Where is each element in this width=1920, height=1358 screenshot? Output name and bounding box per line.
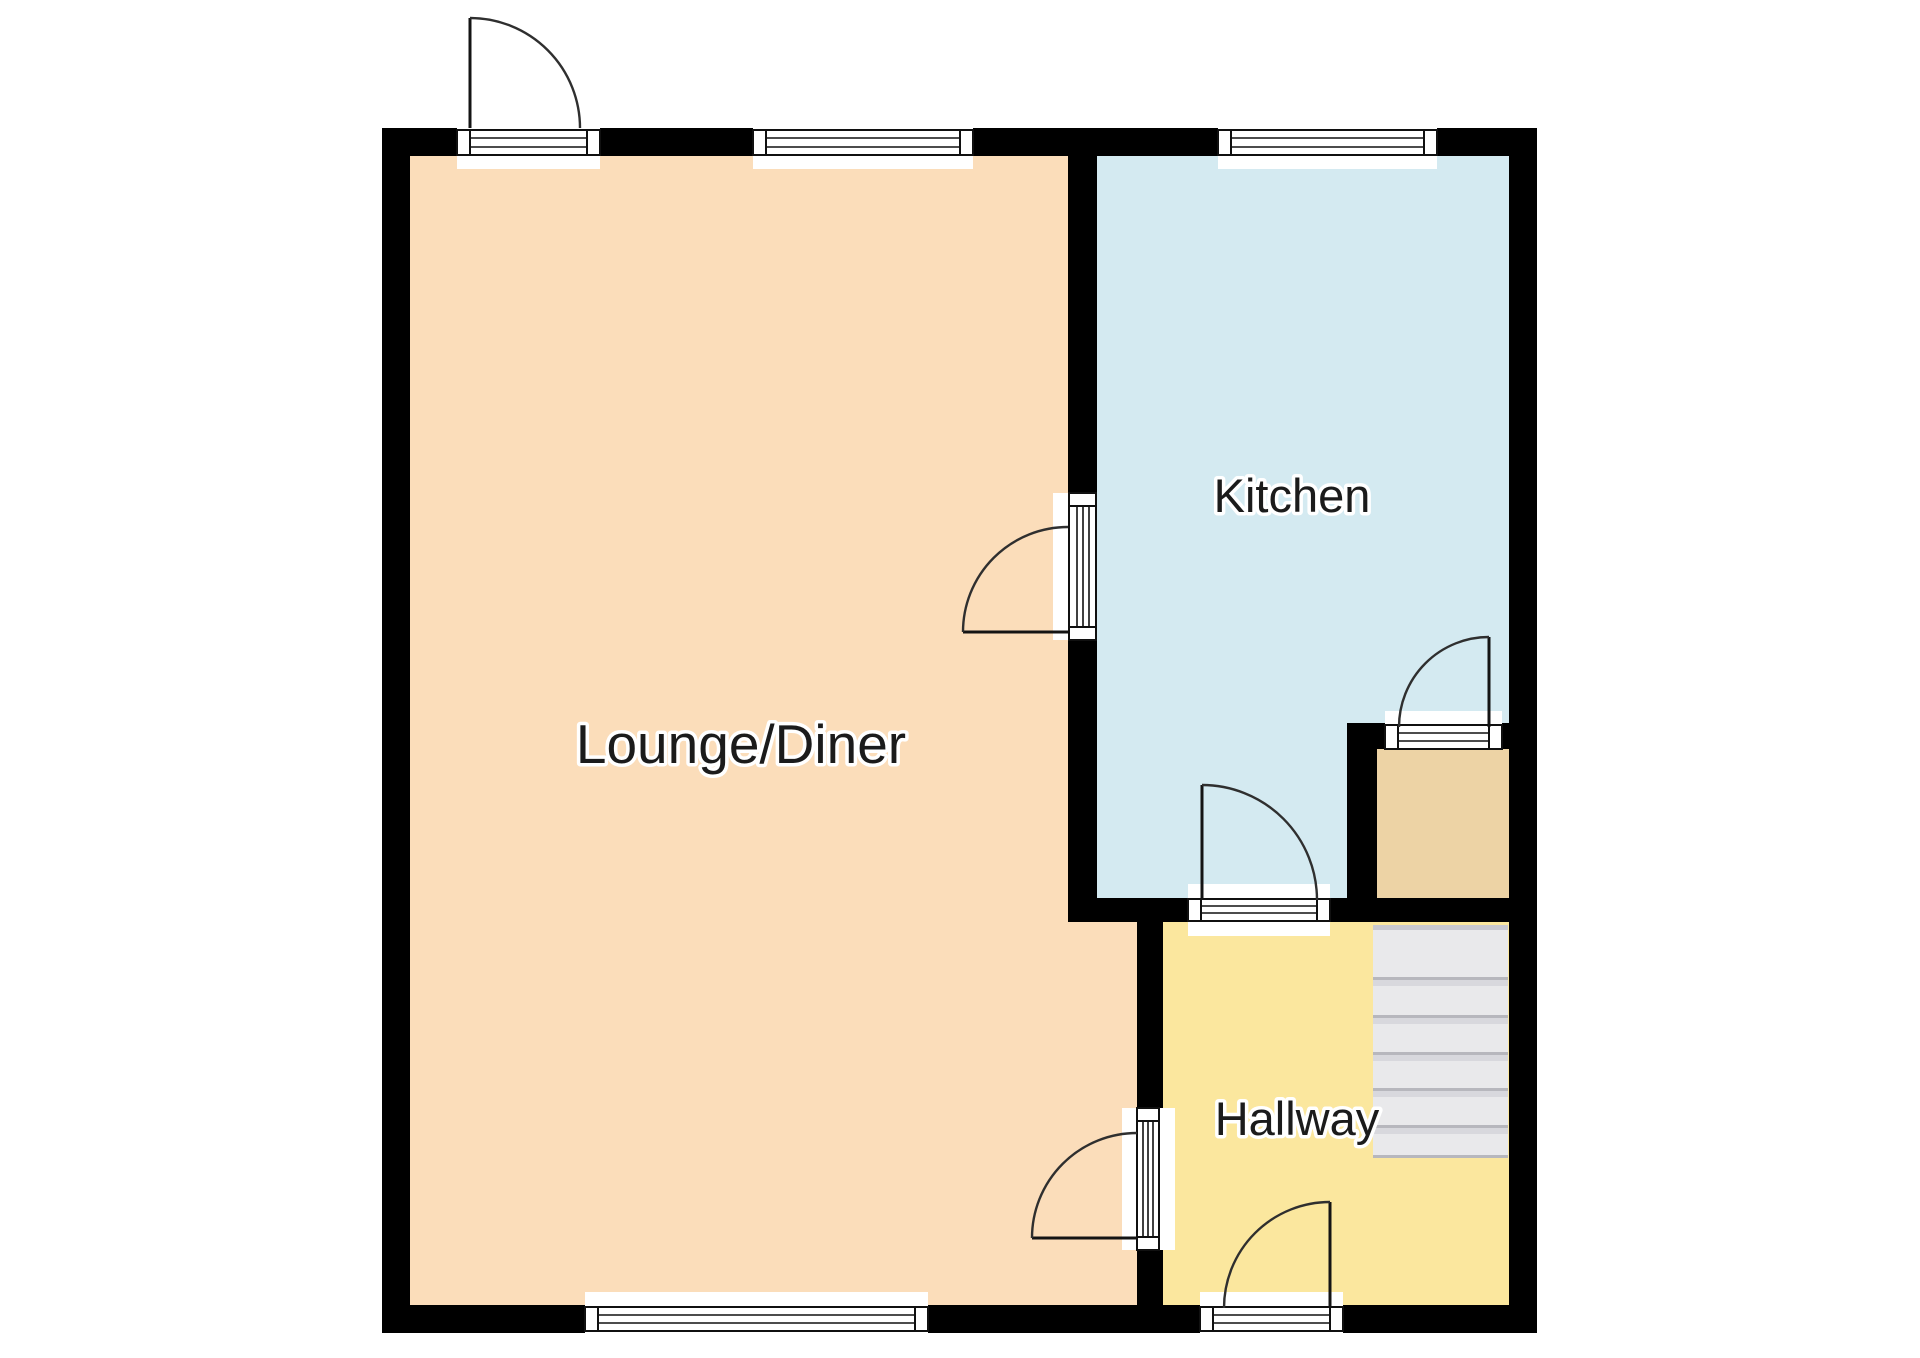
stair-tread-edge: [1373, 1052, 1508, 1055]
niche: [1385, 711, 1502, 725]
wall-left-exterior: [382, 128, 410, 1333]
wall-right-exterior: [1509, 128, 1537, 1333]
stair-tread-shadow: [1373, 1128, 1508, 1134]
window-cap: [585, 1307, 598, 1331]
lounge-label: Lounge/Diner: [576, 713, 906, 775]
door-threshold: [1200, 1307, 1343, 1331]
door-threshold: [1188, 899, 1330, 921]
threshold-cap: [1200, 1307, 1213, 1331]
niche: [1188, 884, 1330, 899]
niche: [1053, 493, 1069, 640]
niche: [1188, 922, 1330, 936]
niche: [585, 1292, 928, 1306]
stair-tread-shadow: [1373, 980, 1508, 986]
threshold-cap: [457, 130, 470, 155]
threshold-cap: [1489, 725, 1502, 749]
window-frame: [1218, 130, 1437, 155]
window-frame: [753, 130, 973, 155]
window-cap: [915, 1307, 928, 1331]
window-cap: [1218, 130, 1231, 155]
stair-tread-shadow: [1373, 1055, 1508, 1061]
stair-tread-edge: [1373, 977, 1508, 980]
window-cap: [753, 130, 766, 155]
lounge-bottom-window: [585, 1307, 928, 1331]
wall-segment-bottom: [382, 1305, 585, 1333]
niche: [1200, 1292, 1343, 1306]
threshold-cap: [587, 130, 600, 155]
store-floor: [1377, 749, 1509, 898]
stairs-top-shadow: [1373, 925, 1508, 930]
door-cap: [1137, 1108, 1159, 1121]
door-threshold: [1385, 725, 1502, 749]
wall-store-top: [1347, 723, 1385, 749]
threshold-cap: [1188, 899, 1201, 921]
wall-kitchen-store-column: [1347, 723, 1377, 922]
window-cap: [960, 130, 973, 155]
wall-lounge-hallway-divider: [1137, 1250, 1163, 1305]
wall-segment-bottom: [928, 1305, 1200, 1333]
wall-segment-top: [600, 128, 753, 156]
lounge-top-window: [753, 130, 973, 155]
stair-tread-shadow: [1373, 1091, 1508, 1097]
threshold-cap: [1385, 725, 1398, 749]
wall-lounge-hallway-divider: [1137, 922, 1163, 1108]
niche: [457, 155, 600, 169]
floorplan-svg: Lounge/Diner Kitchen Hallway: [0, 0, 1920, 1358]
door-threshold: [457, 130, 600, 155]
door-cap: [1069, 493, 1096, 506]
wall-store-top: [1502, 723, 1512, 749]
stair-tread-shadow: [1373, 1018, 1508, 1024]
wall-lounge-kitchen-divider: [1068, 640, 1097, 922]
threshold-cap: [1330, 1307, 1343, 1331]
niche: [1218, 155, 1437, 169]
niche: [1122, 1108, 1137, 1250]
door-cap: [1137, 1237, 1159, 1250]
wall-lounge-kitchen-divider: [1068, 156, 1097, 493]
niche: [1159, 1108, 1175, 1250]
stair-tread-edge: [1373, 1015, 1508, 1018]
stair-tread-edge: [1373, 1088, 1508, 1091]
door-cap: [1069, 627, 1096, 640]
stair-tread-edge: [1373, 1125, 1508, 1128]
kitchen-window: [1218, 130, 1437, 155]
window-frame: [585, 1307, 928, 1331]
stair-tread-edge: [1373, 1155, 1508, 1158]
kitchen-label: Kitchen: [1214, 469, 1371, 522]
niche: [753, 155, 973, 169]
wall-segment-top: [973, 128, 1218, 156]
hallway-label: Hallway: [1215, 1092, 1380, 1145]
wall-segment-bottom: [1343, 1305, 1537, 1333]
threshold-cap: [1317, 899, 1330, 921]
staircase: [1373, 925, 1508, 1158]
stairs-base: [1373, 925, 1508, 1158]
wall-hallway-top: [1068, 898, 1188, 922]
window-cap: [1424, 130, 1437, 155]
